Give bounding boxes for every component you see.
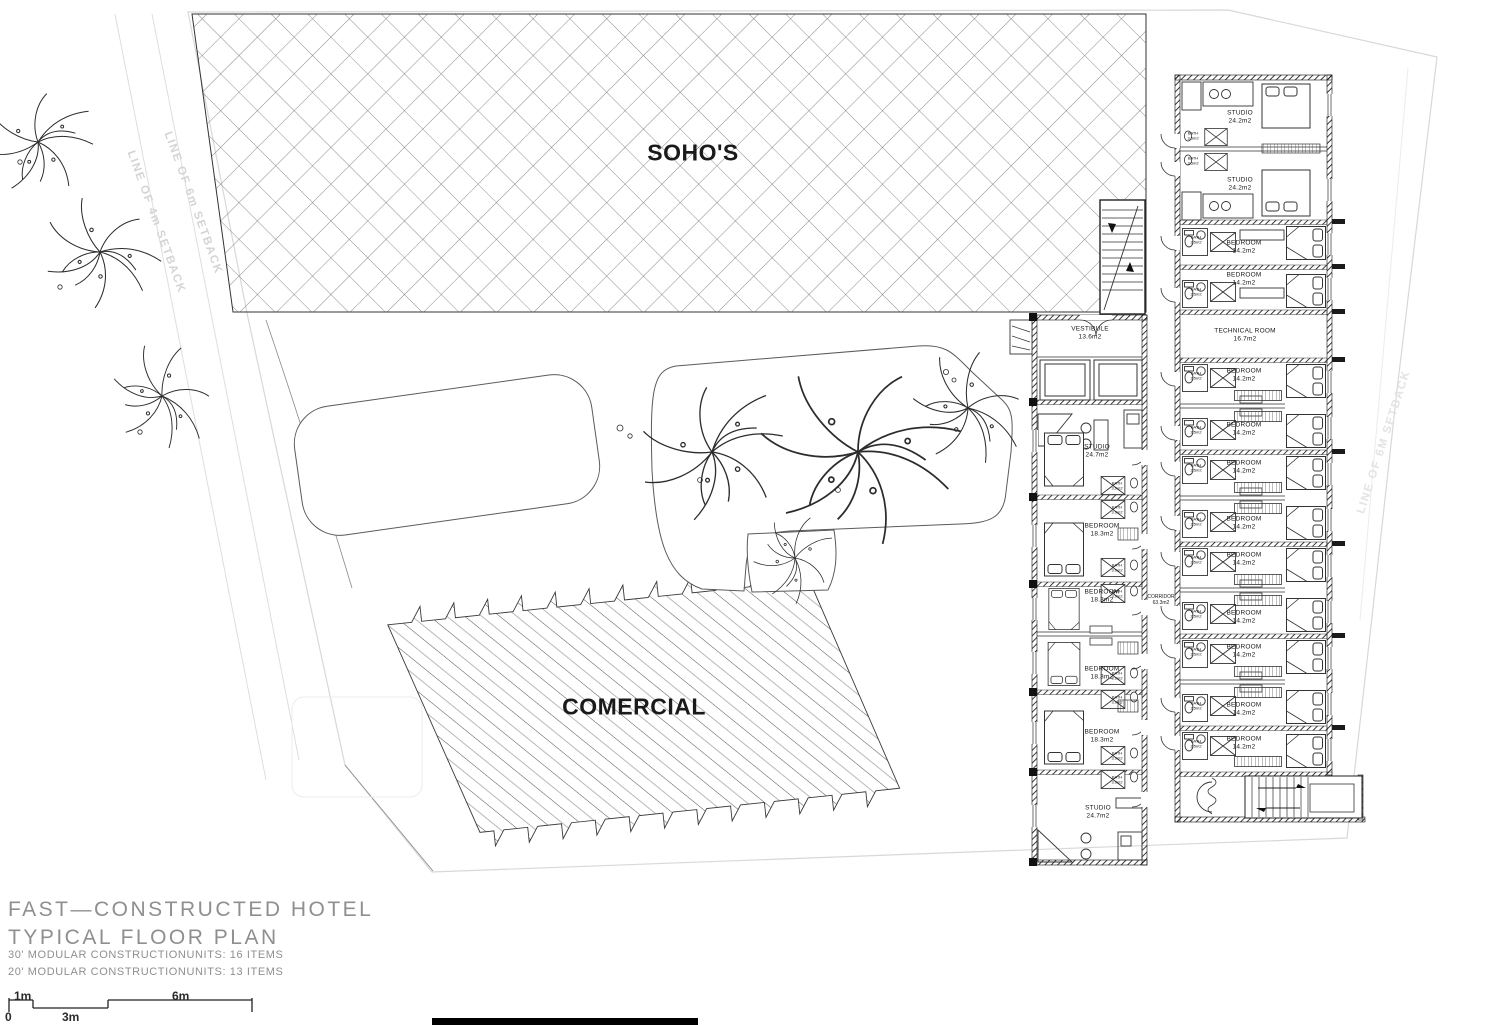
scale-0-label: 0	[5, 1010, 12, 1024]
bath-label: BATH 3.9m2	[1111, 563, 1122, 572]
room-label: BEDROOM14.2m2	[1227, 736, 1262, 753]
room-label: BEDROOM14.2m2	[1227, 552, 1262, 569]
room-label: BEDROOM14.2m2	[1227, 610, 1262, 627]
sohos-label: SOHO'S	[647, 140, 739, 167]
room-label: BEDROOM18.3m2	[1085, 729, 1120, 746]
bath-label: BATH 3.9m2	[1111, 671, 1122, 680]
bath-label: BATH 3.9m2	[1111, 505, 1122, 514]
scale-bar	[0, 985, 300, 1025]
bath-label: BATH 2.5m2	[1190, 517, 1201, 526]
stair-south	[1197, 776, 1362, 818]
room-label: BEDROOM18.3m2	[1085, 523, 1120, 540]
bath-label: BATH 2.5m2	[1190, 287, 1201, 296]
bath-label: BATH 3.9m2	[1111, 589, 1122, 598]
drawing-title-line2: TYPICAL FLOOR PLAN	[8, 926, 279, 950]
stair-north	[1100, 200, 1145, 314]
bath-label: BATH 2.5m2	[1190, 609, 1201, 618]
vestibule-label: VESTIBULE13.6m2	[1071, 326, 1109, 343]
room-label: BEDROOM14.2m2	[1227, 460, 1262, 477]
scale-6m-label: 6m	[172, 989, 189, 1003]
room-label: BEDROOM14.2m2	[1227, 272, 1262, 289]
bath-label: BATH 3.9m2	[1111, 751, 1122, 760]
room-label: STUDIO24.7m2	[1085, 805, 1111, 822]
bath-label: BATH 3.9m2	[1111, 695, 1122, 704]
floor-plan-page: SOHO'S COMERCIAL LINE OF 4m SETBACK LINE…	[0, 0, 1500, 1025]
bath-label: BATH 2.5m2	[1190, 555, 1201, 564]
room-label: BEDROOM14.2m2	[1227, 702, 1262, 719]
bath-label: BATH 2.5m2	[1190, 739, 1201, 748]
room-label: BEDROOM14.2m2	[1227, 422, 1262, 439]
room-label: STUDIO24.2m2	[1227, 110, 1253, 127]
comercial-label: COMERCIAL	[562, 694, 706, 721]
bath-label: BATH 2.5m2	[1190, 647, 1201, 656]
drawing-title-line1: FAST—CONSTRUCTED HOTEL	[8, 898, 373, 922]
bath-label: BATH 2.5m2	[1190, 235, 1201, 244]
room-label: STUDIO24.2m2	[1227, 177, 1253, 194]
bath-label: BATH 2.5m2	[1190, 425, 1201, 434]
page-edge-mark	[432, 1018, 698, 1025]
room-label: TECHNICAL ROOM16.7m2	[1214, 328, 1275, 345]
room-label: BEDROOM14.2m2	[1227, 368, 1262, 385]
bath-label: BATH 3.5m2	[1187, 131, 1198, 140]
corridor-label: CORRIDOR63.3m2	[1147, 594, 1174, 606]
scale-3m-label: 3m	[62, 1010, 79, 1024]
module-note-20ft: 20' MODULAR CONSTRUCTIONUNITS: 13 ITEMS	[8, 966, 283, 978]
room-label: BEDROOM14.2m2	[1227, 644, 1262, 661]
room-label: BEDROOM14.2m2	[1227, 516, 1262, 533]
site-plan-drawing	[0, 0, 1500, 1025]
bath-label: BATH 3.9m2	[1111, 775, 1122, 784]
bath-label: BATH 3.5m2	[1187, 156, 1198, 165]
room-label: STUDIO24.7m2	[1084, 444, 1110, 461]
courtyard-islands	[289, 346, 1012, 592]
room-label: BEDROOM14.2m2	[1227, 240, 1262, 257]
scale-1m-label: 1m	[14, 989, 31, 1003]
module-note-30ft: 30' MODULAR CONSTRUCTIONUNITS: 16 ITEMS	[8, 949, 283, 961]
bath-label: BATH 2.5m2	[1190, 701, 1201, 710]
bath-label: BATH 2.5m2	[1190, 371, 1201, 380]
bath-label: BATH 3.9m2	[1111, 481, 1122, 490]
bath-label: BATH 2.5m2	[1190, 463, 1201, 472]
